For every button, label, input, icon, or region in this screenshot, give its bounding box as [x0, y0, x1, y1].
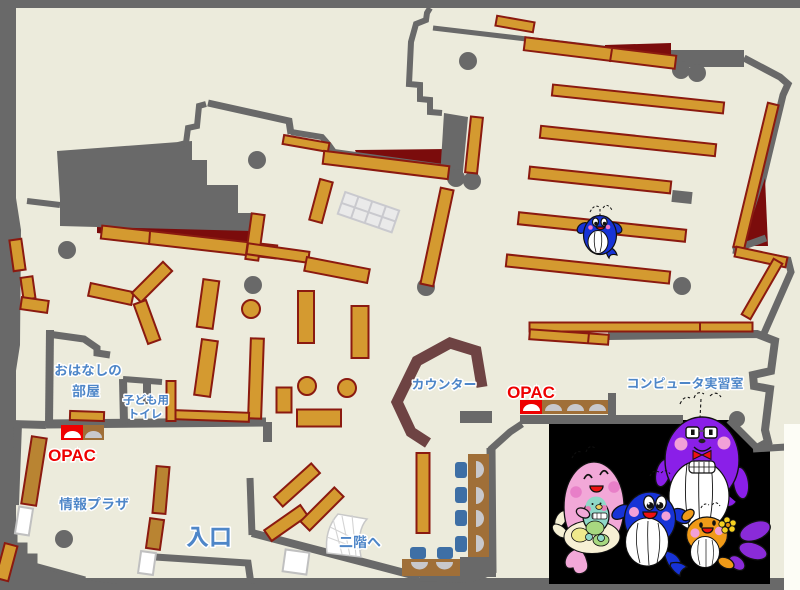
svg-text:OPAC: OPAC [48, 446, 96, 465]
svg-text:OPAC: OPAC [507, 383, 555, 402]
